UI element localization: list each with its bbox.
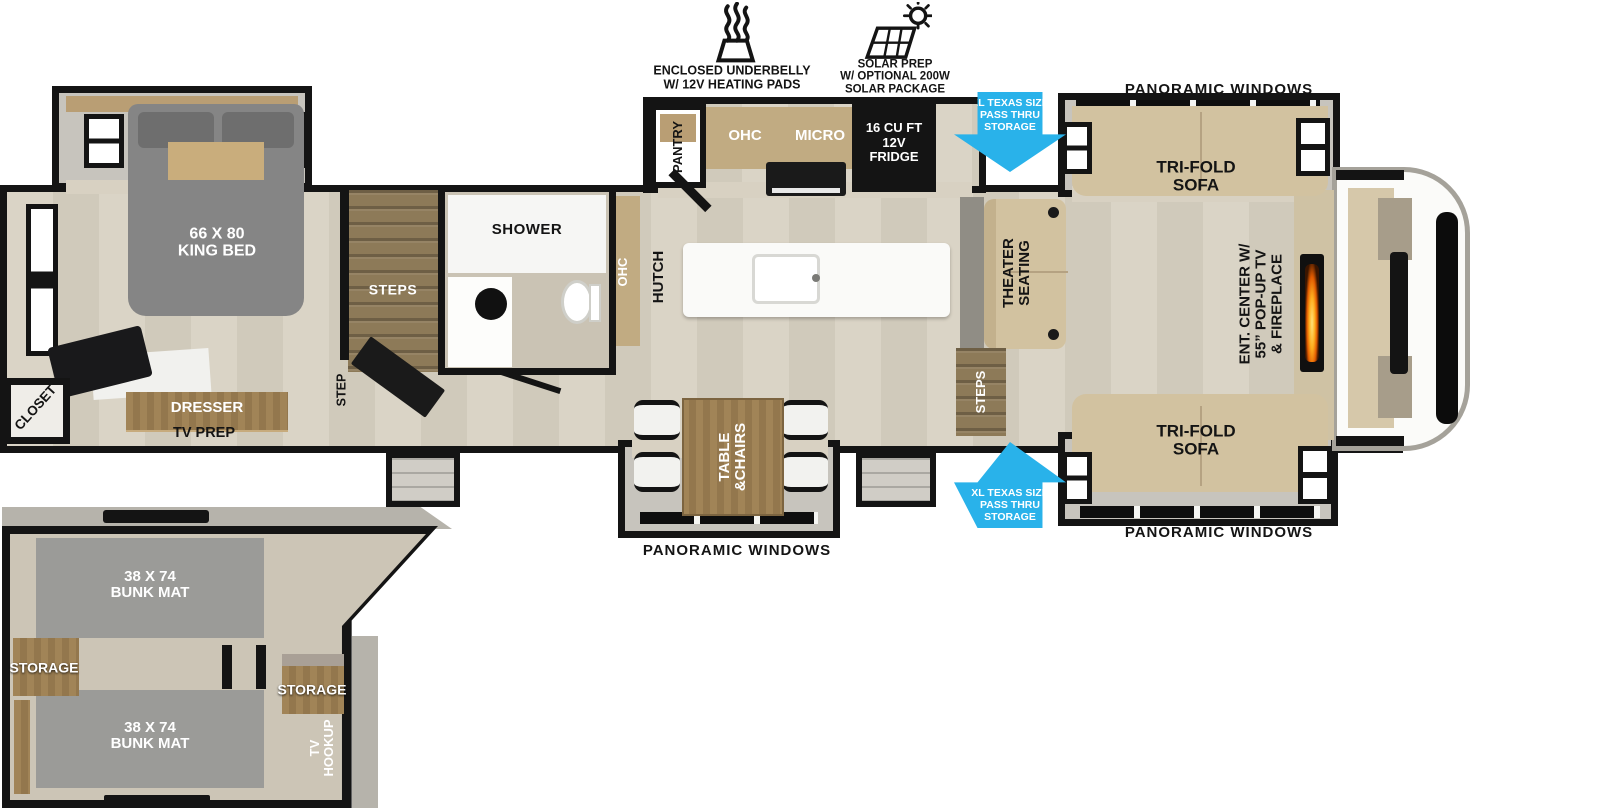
bunk-ladder-strip	[14, 700, 30, 794]
theater-line2: SEATING	[1017, 238, 1033, 308]
bunk-bottom-line1: 38 X 74	[111, 720, 190, 736]
step-label: STEP	[335, 374, 349, 407]
sofa-bottom-line2: SOFA	[1156, 441, 1235, 459]
living-steps-label: STEPS	[974, 371, 988, 414]
tv-prep-label: TV PREP	[173, 426, 235, 442]
fridge-line1: 16 CU FT	[866, 121, 922, 136]
theater-seating-label: THEATER SEATING	[1001, 238, 1033, 308]
bunk-top-line2: BUNK MAT	[111, 585, 190, 601]
dinette-chair	[782, 400, 828, 440]
heating-pads-icon	[700, 2, 766, 66]
bunk-mat-top-label: 38 X 74 BUNK MAT	[111, 569, 190, 601]
solar-panel-icon	[856, 2, 932, 64]
table-line1: TABLE	[717, 423, 733, 491]
bunk-wall-trim	[352, 636, 378, 808]
panoramic-windows-top-label: PANORAMIC WINDOWS	[1125, 82, 1313, 98]
range-stove	[766, 162, 846, 196]
rv-floorplan: ENCLOSED UNDERBELLY W/ 12V HEATING PADS …	[0, 0, 1600, 811]
bunk-roof-vent	[103, 510, 209, 523]
theater-wall	[960, 197, 984, 352]
slide-window-right	[1296, 118, 1330, 176]
ent-line1: ENT. CENTER W/	[1238, 244, 1254, 365]
tri-fold-sofa-top-label: TRI-FOLD SOFA	[1156, 159, 1235, 196]
theater-line1: THEATER	[1001, 238, 1017, 308]
shower-label: SHOWER	[492, 222, 563, 238]
table-line2: &CHAIRS	[733, 423, 749, 491]
entry-steps-left	[386, 452, 460, 507]
panoramic-windows-bottom-right-label: PANORAMIC WINDOWS	[1125, 525, 1313, 541]
bunk-storage-left-label: STORAGE	[10, 660, 79, 675]
cup-holder	[1048, 207, 1059, 218]
bed-throw	[168, 142, 264, 180]
ent-center-label: ENT. CENTER W/ 55” POP-UP TV & FIREPLACE	[1238, 244, 1287, 365]
sink-faucet	[812, 274, 820, 282]
dinette-chair	[782, 452, 828, 492]
bath-sink	[475, 288, 507, 320]
hutch-ohc-label: OHC	[616, 258, 630, 287]
underbelly-line2: W/ 12V HEATING PADS	[653, 78, 810, 92]
underbelly-line1: ENCLOSED UNDERBELLY	[653, 65, 810, 79]
tv-hookup-line2: HOOKUP	[322, 719, 336, 776]
fireplace-flame	[1305, 264, 1319, 362]
bunk-bottom-vent	[104, 795, 210, 805]
front-window-slot	[1436, 212, 1458, 424]
bedroom-window-left	[84, 114, 124, 168]
pantry-label: PANTRY	[671, 121, 685, 173]
bedroom-wall	[340, 185, 349, 360]
bathroom	[438, 185, 616, 375]
bed-line1: 66 X 80	[178, 226, 256, 243]
slide-window-left	[1062, 122, 1092, 174]
tv-hookup-line1: TV	[308, 719, 322, 776]
fridge-line2: 12V	[866, 136, 922, 151]
front-cap-bottom-trim	[1336, 436, 1404, 446]
pop-up-tv	[1390, 252, 1408, 374]
tri-fold-sofa-bottom-label: TRI-FOLD SOFA	[1156, 423, 1235, 460]
underbelly-label: ENCLOSED UNDERBELLY W/ 12V HEATING PADS	[653, 65, 810, 92]
bath-vanity	[448, 277, 512, 367]
bunk-cubby	[222, 645, 232, 689]
slide-window-left	[1062, 452, 1092, 504]
solar-line1: SOLAR PREP	[840, 58, 950, 70]
front-cap-top-trim	[1336, 170, 1404, 180]
kitchen-ohc-label: OHC	[728, 128, 761, 144]
bedroom-side-window	[26, 204, 58, 356]
sofa-top-line2: SOFA	[1156, 177, 1235, 195]
pass-thru-line2: PASS THRU	[954, 499, 1066, 511]
bunk-mat-bottom-label: 38 X 74 BUNK MAT	[111, 720, 190, 752]
bunk-top-line1: 38 X 74	[111, 569, 190, 585]
fridge-line3: FRIDGE	[866, 150, 922, 165]
toilet-tank	[589, 284, 601, 322]
dresser-label: DRESSER	[171, 400, 244, 416]
bunk-bottom-line2: BUNK MAT	[111, 736, 190, 752]
bedroom-steps-label: STEPS	[369, 282, 417, 297]
front-cabinet-upper	[1378, 198, 1412, 260]
pass-thru-line3: STORAGE	[954, 511, 1066, 523]
fridge-label: 16 CU FT 12V FRIDGE	[866, 121, 922, 165]
storage-top-trim	[282, 654, 344, 666]
tv-hookup-label: TV HOOKUP	[308, 719, 336, 776]
solar-line2: W/ OPTIONAL 200W	[840, 71, 950, 83]
hutch-label: HUTCH	[651, 251, 667, 304]
sofa-top-line1: TRI-FOLD	[1156, 159, 1235, 177]
table-chairs-label: TABLE &CHAIRS	[717, 423, 749, 491]
entry-steps-right	[856, 452, 936, 507]
kitchen-island	[683, 243, 950, 317]
pass-thru-arrow-up: XL TEXAS SIZE PASS THRU STORAGE	[954, 442, 1066, 528]
island-sink	[752, 254, 820, 304]
panoramic-window-strip-bottom	[1080, 506, 1320, 518]
bed-line2: KING BED	[178, 243, 256, 260]
pass-thru-line1: XL TEXAS SIZE	[954, 487, 1066, 499]
fireplace	[1300, 254, 1324, 372]
dinette-chair	[634, 452, 680, 492]
solar-line3: SOLAR PACKAGE	[840, 83, 950, 95]
stove-front-trim	[772, 188, 840, 193]
dinette-chair	[634, 400, 680, 440]
slide-window-right	[1298, 446, 1332, 504]
panoramic-windows-bottom-mid-label: PANORAMIC WINDOWS	[643, 543, 831, 559]
micro-label: MICRO	[795, 128, 845, 144]
sofa-bottom-line1: TRI-FOLD	[1156, 423, 1235, 441]
bunk-cubby	[256, 645, 266, 689]
cup-holder	[1048, 329, 1059, 340]
king-bed-label: 66 X 80 KING BED	[178, 226, 256, 261]
king-bed	[128, 104, 304, 316]
bunk-storage-right-label: STORAGE	[278, 682, 347, 697]
ent-line2: 55” POP-UP TV	[1254, 244, 1270, 365]
bunk-roof-band	[2, 507, 452, 529]
ent-line3: & FIREPLACE	[1270, 244, 1286, 365]
solar-label: SOLAR PREP W/ OPTIONAL 200W SOLAR PACKAG…	[840, 58, 950, 95]
